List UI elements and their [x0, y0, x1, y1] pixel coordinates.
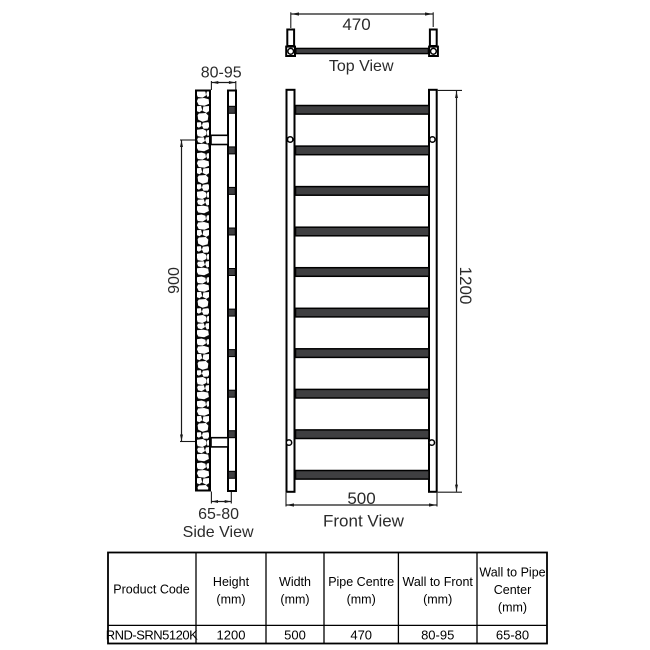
- svg-text:65-80: 65-80: [496, 628, 529, 643]
- svg-text:1200: 1200: [456, 267, 475, 305]
- svg-text:Front View: Front View: [323, 512, 405, 531]
- svg-text:Wall to Front: Wall to Front: [403, 575, 474, 589]
- svg-text:500: 500: [347, 489, 375, 508]
- svg-text:Top View: Top View: [329, 58, 394, 75]
- svg-text:(mm): (mm): [216, 593, 245, 607]
- svg-text:500: 500: [284, 628, 306, 643]
- svg-text:RND-SRN5120K: RND-SRN5120K: [106, 628, 198, 643]
- svg-text:470: 470: [350, 628, 372, 643]
- svg-text:Center: Center: [494, 583, 532, 597]
- svg-text:80-95: 80-95: [421, 628, 454, 643]
- svg-text:Wall to Pipe: Wall to Pipe: [479, 566, 545, 580]
- svg-text:(mm): (mm): [280, 593, 309, 607]
- svg-text:Product Code: Product Code: [113, 583, 189, 597]
- svg-text:80-95: 80-95: [201, 65, 242, 82]
- svg-text:900: 900: [166, 267, 183, 294]
- svg-text:Side View: Side View: [183, 524, 254, 541]
- svg-text:Pipe Centre: Pipe Centre: [328, 575, 394, 589]
- svg-text:(mm): (mm): [423, 593, 452, 607]
- svg-text:1200: 1200: [217, 628, 246, 643]
- svg-text:470: 470: [342, 15, 370, 34]
- svg-text:Height: Height: [213, 575, 250, 589]
- svg-text:Width: Width: [279, 575, 311, 589]
- svg-text:65-80: 65-80: [198, 506, 239, 523]
- svg-text:(mm): (mm): [347, 593, 376, 607]
- svg-text:(mm): (mm): [498, 601, 527, 615]
